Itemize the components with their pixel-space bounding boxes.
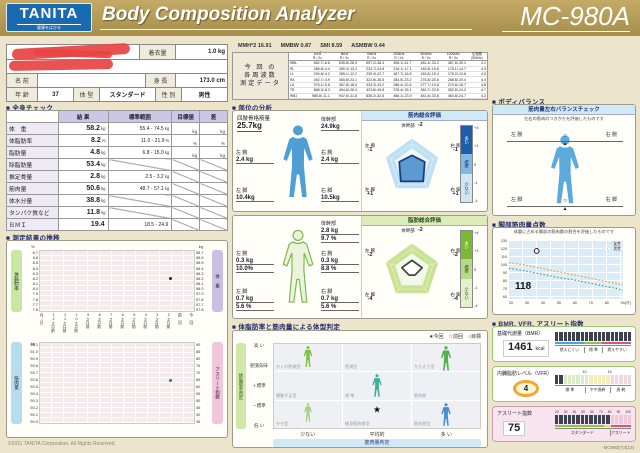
wb-header-target: 目標値	[172, 111, 200, 123]
wb-diff: %	[200, 135, 228, 147]
gauge-block	[594, 415, 597, 424]
legend-zone-high: 多い	[461, 231, 472, 259]
muscle-radar-legend: 多い 標準 少ない +4+10-1-4	[460, 125, 484, 203]
athlete-axis-label: アスリート指数	[212, 342, 223, 424]
fat-radar-la: 左 腕-2	[363, 248, 377, 258]
muscle-left-leg: 左 脚10.4kg	[236, 187, 274, 202]
whole-body-row: 体水分量38.8kg	[7, 195, 228, 207]
leg-score-panel: 体重に占める脚部の筋肉量の割合を評価したものです 130120110100908…	[492, 227, 636, 315]
gauge-zone-label: やや過剰	[585, 387, 610, 393]
gauge-block	[619, 415, 622, 424]
gauge-block	[589, 332, 592, 341]
muscle-levels: 少ない平均的多 い	[273, 431, 481, 438]
whole-body-row: タンパク質など11.8kg	[7, 207, 228, 219]
muscle-tick: 50.8	[23, 363, 38, 368]
balance-left-leg-label: 左 脚	[511, 196, 522, 203]
wb-diff	[200, 207, 228, 219]
gauge-block	[572, 332, 575, 341]
muscle-rl-label: 右 脚	[321, 188, 332, 194]
wb-row-label: ＢＭＩ	[7, 219, 59, 231]
body-type-marker-legend: ★今回 ☆前回 ○目標	[429, 333, 481, 340]
gauge-blocks	[555, 332, 631, 341]
history-bottom-chart: 筋肉量 51.151.050.950.850.750.650.550.450.3…	[11, 342, 223, 424]
history-top-chart: 体脂肪率 8.78.68.58.48.38.28.18.07.97.87.77.…	[11, 250, 223, 312]
muscle-right-arm: 右 腕2.4 kg	[321, 149, 359, 164]
gauge-block	[615, 375, 618, 384]
body-type-cell-label: かた太り型	[414, 364, 434, 370]
fat-trunk: 体幹部2.8 kg9.7 %	[321, 220, 359, 243]
legend-zone-mid: 標準	[461, 154, 472, 174]
wb-row-label: 筋肉量	[7, 183, 59, 195]
leg-y-tick: 70	[496, 287, 507, 291]
gauge-blocks	[555, 415, 631, 424]
wb-diff	[200, 159, 228, 171]
wb-diff	[200, 219, 228, 231]
leg-x-tick: 30	[525, 301, 529, 306]
vfr-label: 内臓脂肪レベル（VFR）	[497, 370, 552, 377]
gauge-block	[628, 375, 631, 384]
model-underline	[502, 31, 630, 32]
freq-cell: 985.8/-11.1	[304, 93, 331, 98]
gauge-block	[576, 415, 579, 424]
gauge-zone-label: 標 準	[555, 387, 585, 393]
fat-tick: 7.6	[23, 307, 38, 312]
wb-result: 58.2kg	[58, 123, 108, 135]
gauge-zone-labels: 標 準やや過剰過 剰	[555, 385, 631, 393]
athlete-tick: 90	[196, 342, 211, 347]
impedance-stat: SMI 8.59	[320, 43, 342, 49]
gauge-strip-seg	[555, 342, 584, 344]
wb-target	[172, 159, 200, 171]
gauge-zone-labels: 燃えにくい標 準燃えやすい	[555, 345, 631, 353]
wb-row-label: 脂肪量	[7, 147, 59, 159]
whole-body-table: 結 果 標準範囲 目標値 差 体 重58.2kg55.4 - 74.5kgkgk…	[6, 110, 228, 231]
balance-fulcrum-icon: ▲	[563, 206, 568, 212]
wb-range: 55.4 - 74.5kg	[108, 123, 172, 135]
leg-y-tick: 90	[496, 271, 507, 275]
balance-circle-icon: ○	[563, 198, 567, 204]
leg-y-tick: 60	[496, 295, 507, 299]
sex-value: 男性	[181, 88, 227, 101]
vfr-panel: 内臓脂肪レベル（VFR） 4 1015標 準やや過剰過 剰	[492, 366, 636, 402]
wb-row-label: タンパク質など	[7, 207, 59, 219]
muscle-figure-area: 四肢骨格筋量 25.7kg 体幹部24.9kg 左 腕2.4 kg 右 腕2.4…	[233, 111, 361, 211]
gauge-block	[585, 332, 588, 341]
balance-right-arm-label: 右 腕	[606, 131, 617, 138]
body-type-cell: 筋肉質型	[412, 401, 480, 428]
gauge-block	[602, 375, 605, 384]
freq-col-header: 1kHzR / Xc	[304, 53, 331, 61]
wb-row-label: 体水分量	[7, 195, 59, 207]
freq-cell: 4.3	[467, 93, 487, 98]
leg-score-x-ticks: 2030405060708090(才)	[509, 301, 631, 306]
vfr-tick: 15	[607, 370, 611, 374]
gauge-block	[606, 375, 609, 384]
gauge-strip-seg	[602, 342, 631, 344]
body-type-cell-label: 運動不足型	[276, 393, 296, 399]
muscle-tick: 50.5	[23, 384, 38, 389]
muscle-data-point	[169, 379, 172, 382]
vfr-gauge: 1015標 準やや過剰過 剰	[555, 370, 631, 393]
wb-result: 8.2%	[58, 135, 108, 147]
balance-circle-icon: ○	[563, 133, 567, 139]
report-page: { "header":{"brand":"TANITA","tagline":"…	[0, 0, 640, 453]
gauge-block	[598, 332, 601, 341]
muscle-tick: 50.7	[23, 370, 38, 375]
gauge-block	[559, 415, 562, 424]
leg-y-tick: 110	[496, 255, 507, 259]
gauge-block	[624, 375, 627, 384]
gauge-strip-seg	[584, 342, 602, 344]
gauge-blocks	[555, 375, 631, 384]
gauge-block	[628, 332, 631, 341]
gauge-block	[576, 375, 579, 384]
wb-result: 38.8kg	[58, 195, 108, 207]
gauge-block	[594, 375, 597, 384]
leg-x-tick: 40	[541, 301, 545, 306]
current-result-star: ★	[373, 405, 381, 416]
history-x-label: 3ヶ月前	[155, 313, 159, 342]
person-silhouette-icon	[303, 403, 313, 423]
muscle-tick: 50.3	[23, 398, 38, 403]
leg-score-legend: ・・・女性 ・・・男性	[602, 242, 621, 251]
fat-radar-trunk: 体幹部-2	[376, 228, 448, 233]
impedance-stats: MMH*2 16.91MMBW 0.87SMI 8.59ASMBW 0.44	[238, 43, 385, 49]
arm-balance-beam: ○▲	[507, 141, 623, 142]
gauge-block	[581, 332, 584, 341]
body-type-cell: ★細身筋肉質型	[343, 401, 411, 428]
body-type-cell: かくれ肥満型	[274, 344, 342, 371]
freq-cell: 466.1/-23.9	[385, 93, 412, 98]
body-type-figure	[371, 374, 383, 398]
athlete-tick: 45	[196, 405, 211, 410]
muscle-la-value: 2.4 kg	[236, 157, 274, 164]
athlete-tick: 40	[196, 412, 211, 417]
gauge-block	[559, 375, 562, 384]
body-type-cell-label: やせ型	[276, 421, 288, 427]
muscle-trunk-value: 24.9kg	[321, 124, 359, 131]
leg-x-tick: 20	[509, 301, 513, 306]
history-x-labels: 月/日12ヶ月前11ヶ月前10ヶ月前9ヶ月前8ヶ月前7ヶ月前6ヶ月前5ヶ月前4ヶ…	[11, 312, 223, 342]
athlete-tick: 60	[196, 384, 211, 389]
history-x-label: 2ヶ月前	[167, 313, 171, 342]
wb-target: %	[172, 135, 200, 147]
history-panel: % kg kg 体脂肪率 8.78.68.58.48.38.28.18.07.9…	[6, 240, 228, 438]
age-value: 37	[37, 88, 73, 101]
gauge-strip	[555, 342, 631, 344]
fat-left-leg: 左 脚0.7 kg5.6 %	[236, 288, 274, 311]
body-type-cell: かた太り型	[412, 344, 480, 371]
impedance-stat: ASMBW 0.44	[351, 43, 385, 49]
gauge-block	[585, 415, 588, 424]
vfr-scale-ticks: 1015	[555, 370, 631, 375]
wb-range: 11.0 - 21.9%	[108, 135, 172, 147]
body-fat-levels: 高 い肥満気味＋標準－標準低 い	[247, 343, 271, 429]
freq-col-header: 1000kHzR / Xc	[440, 53, 467, 61]
athlete-label: アスリート指数	[497, 410, 532, 417]
wb-header-diff: 差	[200, 111, 228, 123]
gauge-block	[589, 375, 592, 384]
athlete-tick: 65	[196, 377, 211, 382]
person-silhouette-icon	[279, 222, 317, 314]
fat-data-point	[169, 277, 172, 280]
fat-left-arm: 左 腕0.3 kg10.0%	[236, 250, 274, 273]
fat-weight-grid	[39, 250, 195, 312]
freq-col-blank	[289, 53, 304, 61]
whole-body-row: 脂肪量4.8kg6.8 - 15.0kgkgkg	[7, 147, 228, 159]
freq-cell: 463.8/-24.7	[440, 93, 467, 98]
gauge-strip	[555, 425, 631, 427]
gauge-block	[564, 375, 567, 384]
muscle-ra-value: 2.4 kg	[321, 157, 359, 164]
history-x-label: 8ヶ月前	[98, 313, 102, 342]
wb-diff: kg	[200, 123, 228, 135]
weight-axis-label: 体 重	[212, 250, 223, 312]
leg-y-tick: 80	[496, 279, 507, 283]
history-x-label: 4ヶ月前	[144, 313, 148, 342]
wb-row-label: 除脂肪量	[7, 159, 59, 171]
brand-name: TANITA	[7, 4, 91, 24]
redaction-scribble	[9, 59, 113, 71]
leg-balance-beam: ○▲	[507, 206, 623, 207]
info-row-4: 年 齢 37 体 型 スタンダード 性 別 男性	[7, 87, 227, 101]
side-label-line3: 測定データ	[233, 80, 288, 88]
wb-target	[172, 183, 200, 195]
muscle-level-label: 少ない	[273, 431, 342, 438]
legend-zone-low: 少ない	[461, 174, 472, 202]
gauge-block	[555, 375, 558, 384]
muscle-level-label: 多 い	[412, 431, 481, 438]
muscle-tick: 50.9	[23, 356, 38, 361]
height-value: 173.0 cm	[175, 74, 227, 87]
gauge-block	[615, 332, 618, 341]
header-band: TANITA 健康をはかる Body Composition Analyzer …	[0, 0, 640, 36]
muscle-rl-value: 10.5kg	[321, 195, 359, 202]
history-x-label: 11ヶ月前	[63, 313, 67, 342]
gauge-block	[602, 332, 605, 341]
athlete-tick: 50	[196, 398, 211, 403]
body-fat-level-label: －標準	[247, 403, 271, 409]
leg-score-y-ticks: 13012011010090807060	[496, 239, 507, 299]
freq-cell: 947.6/-31.8	[331, 93, 358, 98]
gauge-block	[628, 415, 631, 424]
brand-tagline: 健康をはかる	[17, 24, 81, 30]
wb-diff: kg	[200, 147, 228, 159]
muscle-judgement-axis: 筋肉量判定	[273, 439, 481, 447]
muscle-unit: kg	[31, 341, 35, 346]
leg-y-tick: 120	[496, 247, 507, 251]
gauge-block	[606, 332, 609, 341]
vfr-value: 4	[513, 380, 539, 397]
fat-figure-area: 体幹部2.8 kg9.7 % 左 腕0.3 kg10.0% 右 腕0.3 kg8…	[233, 216, 361, 318]
fat-axis-label: 体脂肪率	[11, 250, 22, 312]
body-type-cell-label: 細身筋肉質型	[345, 421, 370, 427]
muscle-tick: 50.2	[23, 405, 38, 410]
wb-range	[108, 207, 172, 219]
segmental-muscle-panel: 四肢骨格筋量 25.7kg 体幹部24.9kg 左 腕2.4 kg 右 腕2.4…	[232, 110, 488, 212]
wb-range: 18.5 - 24.9	[108, 219, 172, 231]
leg-score-chart: ・・・女性 ・・・男性 118	[509, 241, 623, 299]
wb-blank-header	[7, 111, 59, 123]
gauge-block	[624, 415, 627, 424]
body-type-cell-label: 肥満型	[345, 364, 357, 370]
wb-target	[172, 171, 200, 183]
body-type-cell-label: 筋肉質型	[414, 421, 430, 427]
clothing-value: 1.0 kg	[175, 45, 227, 59]
wb-range: 48.7 - 57.1kg	[108, 183, 172, 195]
build-label: 体 型	[73, 88, 99, 101]
gauge-block	[624, 332, 627, 341]
muscle-ra-label: 右 腕	[321, 150, 332, 156]
freq-cell: 836.2/-42.6	[358, 93, 385, 98]
gauge-block	[555, 415, 558, 424]
muscle-tick: 50.4	[23, 391, 38, 396]
fat-legend-ticks: +4+10-1-4	[473, 230, 483, 308]
gauge-block	[594, 332, 597, 341]
gauge-block	[602, 415, 605, 424]
freq-col-header: 50kHzR / Xc	[358, 53, 385, 61]
wb-result: 11.8kg	[58, 207, 108, 219]
history-x-label: 6ヶ月前	[121, 313, 125, 342]
athlete-tick: 80	[196, 356, 211, 361]
legend-zone-high: 多い	[461, 126, 472, 154]
muscle-radar-chart	[377, 131, 447, 201]
gauge-block	[611, 332, 614, 341]
gauge-block	[564, 332, 567, 341]
wb-row-label: 体脂肪率	[7, 135, 59, 147]
bmr-gauge: 燃えにくい標 準燃えやすい	[555, 332, 631, 353]
wb-range: 2.5 - 3.2kg	[108, 171, 172, 183]
fat-legend-bar: 多い 標準 少ない	[460, 230, 473, 308]
gauge-zone-labels: スタンダードアスリート	[555, 428, 631, 436]
muscle-right-leg: 右 脚10.5kg	[321, 187, 359, 202]
wb-result: 50.6kg	[58, 183, 108, 195]
copyright: ©2011 TANITA Corporation. All Rights Res…	[8, 441, 116, 447]
height-label: 身 長	[145, 74, 175, 87]
muscle-radar-trunk: 体幹部-2	[376, 123, 448, 128]
impedance-stat: MMBW 0.87	[281, 43, 312, 49]
history-x-label: 10ヶ月前	[75, 313, 79, 342]
wb-header-result: 結 果	[58, 111, 108, 123]
body-type-cell-label: 標 準	[345, 393, 354, 399]
wb-target: kg	[172, 123, 200, 135]
whole-body-row: 推定骨量2.8kg2.5 - 3.2kg	[7, 171, 228, 183]
gauge-zone-label: アスリート	[610, 430, 631, 436]
muscle-legend-ticks: +4+10-1-4	[473, 125, 483, 203]
person-silhouette-icon	[371, 374, 383, 398]
gauge-zone-label: スタンダード	[555, 430, 610, 436]
title-underline	[100, 29, 472, 30]
gauge-block	[598, 375, 601, 384]
wb-range	[108, 195, 172, 207]
leg-x-tick: 90(才)	[621, 301, 631, 306]
history-x-label: 9ヶ月前	[86, 313, 90, 342]
body-fat-level-label: 高 い	[247, 343, 271, 349]
impedance-stat: MMH*2 16.91	[238, 43, 272, 49]
body-fat-level-label: 低 い	[247, 423, 271, 429]
fat-right-leg: 右 脚0.7 kg5.6 %	[321, 288, 359, 311]
wb-result: 4.8kg	[58, 147, 108, 159]
body-fat-level-label: 肥満気味	[247, 363, 271, 369]
body-type-cell-label: 筋肉質	[414, 393, 426, 399]
age-label: 年 齢	[7, 88, 37, 101]
wb-diff	[200, 171, 228, 183]
wb-result: 53.4kg	[58, 159, 108, 171]
wb-target: kg	[172, 147, 200, 159]
gauge-block	[572, 375, 575, 384]
gauge-block	[559, 332, 562, 341]
muscle-ll-label: 左 脚	[236, 188, 247, 194]
gauge-block	[581, 375, 584, 384]
sex-label: 性 別	[155, 88, 181, 101]
wb-range	[108, 159, 172, 171]
history-x-label: 今 回	[190, 313, 194, 342]
athlete-value: 75	[503, 421, 525, 436]
gauge-zone-label: 過 剰	[610, 387, 631, 393]
body-type-figure	[303, 346, 314, 368]
gauge-block	[568, 375, 571, 384]
wb-result: 19.4	[58, 219, 108, 231]
muscle-la-label: 左 腕	[236, 150, 247, 156]
frequency-side-label: 今 回 の 各周波数 測定データ	[233, 53, 289, 99]
whole-body-row: 筋肉量50.6kg48.7 - 57.1kg	[7, 183, 228, 195]
leg-x-tick: 80	[605, 301, 609, 306]
body-type-cell-label: かくれ肥満型	[276, 364, 301, 370]
body-type-figure	[303, 403, 313, 423]
gauge-strip-seg	[611, 425, 631, 427]
whole-body-row: 除脂肪量53.4kg	[7, 159, 228, 171]
gauge-zone-label: 標 準	[584, 347, 602, 353]
gauge-block	[598, 415, 601, 424]
gauge-block	[606, 415, 609, 424]
build-value: スタンダード	[99, 88, 155, 101]
form-code: MC980(7)4(13)	[603, 445, 634, 450]
person-silhouette-icon	[440, 403, 452, 427]
muscle-radar-ll: 左 脚+1	[363, 187, 377, 197]
gauge-strip-seg	[604, 425, 612, 427]
body-type-figure	[440, 403, 452, 427]
gauge-block	[555, 332, 558, 341]
athlete-tick: 70	[196, 370, 211, 375]
whole-body-row: 体 重58.2kg55.4 - 74.5kgkgkg	[7, 123, 228, 135]
fat-radar-title: 脂肪総合評価	[362, 216, 487, 226]
muscle-athlete-grid	[39, 342, 195, 424]
balance-subtitle: 左右の筋肉のつきかたを評価したものです	[493, 116, 635, 122]
body-type-cell: 肥満型	[343, 344, 411, 371]
gauge-block	[581, 415, 584, 424]
fat-unit: %	[31, 244, 35, 249]
gauge-block	[576, 332, 579, 341]
freq-col-header: 250kHzR / Xc	[385, 53, 412, 61]
freq-col-header: 5kHzR / Xc	[331, 53, 358, 61]
side-label-line2: 各周波数	[233, 72, 288, 80]
limb-muscle-value: 25.7kg	[237, 121, 262, 132]
fat-radar-area: 脂肪総合評価 体幹部-2 左 腕-2 右 腕-2 左 脚-4 右 脚-4 多い …	[361, 216, 487, 318]
gauge-strip-seg	[555, 425, 604, 427]
history-x-label: 12ヶ月前	[52, 313, 56, 342]
frequency-table: 1kHzR / Xc5kHzR / Xc50kHzR / Xc250kHzR /…	[289, 53, 487, 99]
info-row-3: 名 前 身 長 173.0 cm	[7, 73, 227, 87]
whole-body-row: ＢＭＩ19.418.5 - 24.9	[7, 219, 228, 231]
bmr-value: 1461 kcal	[503, 340, 549, 357]
muscle-tick: 50.1	[23, 412, 38, 417]
gauge-zone-label: 燃えにくい	[555, 347, 584, 353]
vfr-tick: 10	[582, 370, 586, 374]
body-fat-judgement-axis: 体脂肪率判定	[236, 343, 246, 429]
legend-zone-low: 少ない	[461, 279, 472, 307]
model-number: MC-980A	[520, 1, 630, 32]
athlete-tick: 75	[196, 363, 211, 368]
